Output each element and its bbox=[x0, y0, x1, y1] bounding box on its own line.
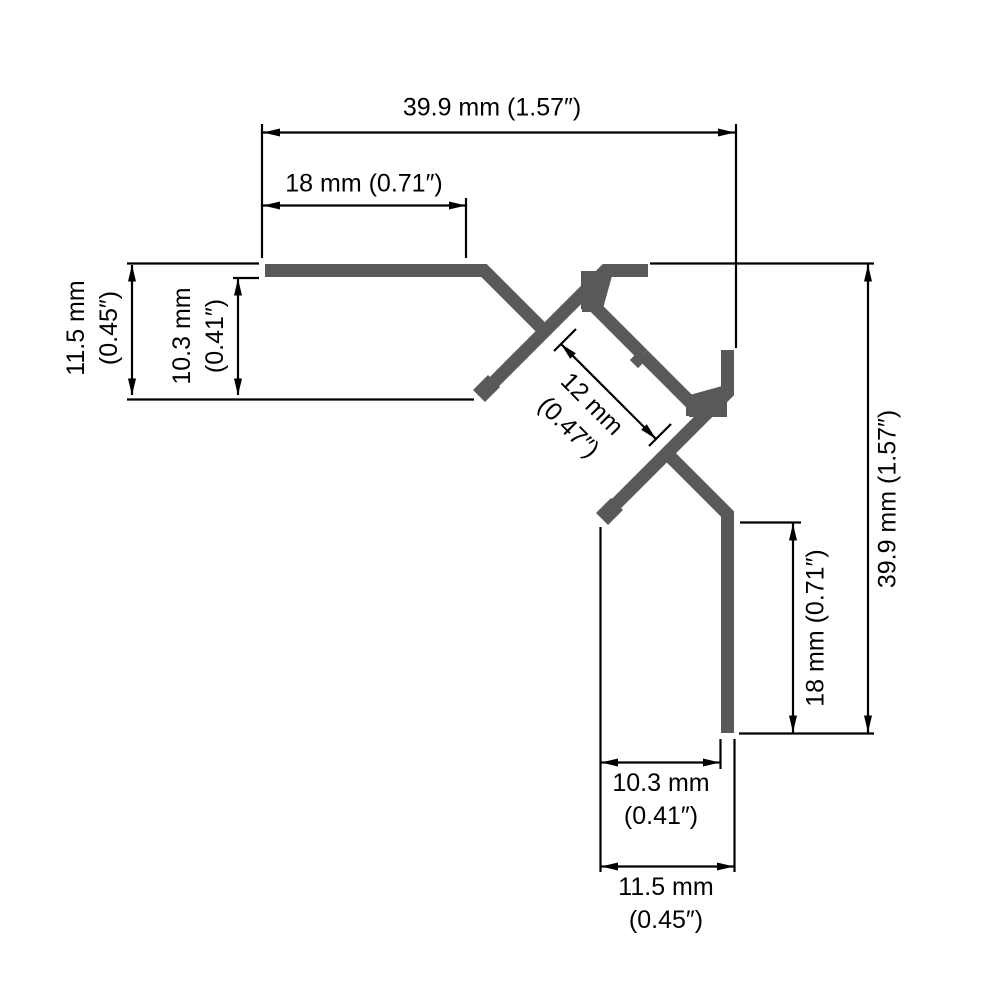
clip-foot bbox=[479, 381, 494, 396]
junction-filler bbox=[582, 276, 612, 312]
arrowhead bbox=[789, 524, 797, 541]
dim-label-bottom-outer-width: 11.5 mm (0.45″) bbox=[618, 871, 713, 937]
dim-line-paths bbox=[132, 133, 868, 867]
arrowhead bbox=[703, 759, 720, 767]
dim-label-top-overall-width: 39.9 mm (1.57″) bbox=[403, 92, 581, 125]
dim-label-bottom-inner-width: 10.3 mm (0.41″) bbox=[612, 767, 709, 833]
arrowhead bbox=[789, 716, 797, 733]
technical-drawing-page: { "drawing": { "profile_color": "#58595B… bbox=[0, 0, 1000, 1000]
arrowhead bbox=[263, 202, 280, 210]
arrowhead bbox=[718, 129, 735, 137]
profile-details bbox=[500, 276, 646, 376]
profile-cross-section bbox=[265, 271, 728, 734]
arrowhead bbox=[128, 379, 136, 396]
dim-label-top-flange-width: 18 mm (0.71″) bbox=[285, 168, 443, 201]
arrowhead bbox=[601, 759, 618, 767]
arrowhead bbox=[234, 279, 242, 296]
arrowhead bbox=[234, 379, 242, 396]
arrowhead bbox=[864, 265, 872, 282]
extension-lines bbox=[127, 124, 874, 872]
profile-leg-upper-left bbox=[265, 271, 648, 397]
arrowhead bbox=[601, 863, 618, 871]
arrowhead bbox=[717, 863, 734, 871]
dim-label-left-inner-height: 10.3 mm (0.41″) bbox=[166, 287, 232, 384]
profile-leg-lower-right bbox=[602, 350, 728, 733]
arrowhead bbox=[263, 129, 280, 137]
dim-label-left-outer-height: 11.5 mm (0.45″) bbox=[60, 280, 126, 375]
arrowhead bbox=[128, 265, 136, 282]
flange-and-outer-wall bbox=[265, 271, 543, 330]
dimension-lines bbox=[128, 129, 872, 871]
dim-label-right-flange-height: 18 mm (0.71″) bbox=[800, 549, 833, 707]
dim-label-right-overall-height: 39.9 mm (1.57″) bbox=[872, 410, 905, 588]
dim-arrowheads bbox=[128, 129, 872, 871]
arrowhead bbox=[864, 716, 872, 733]
arrowhead bbox=[449, 202, 466, 210]
dimension-drawing-canvas bbox=[0, 0, 1000, 1000]
